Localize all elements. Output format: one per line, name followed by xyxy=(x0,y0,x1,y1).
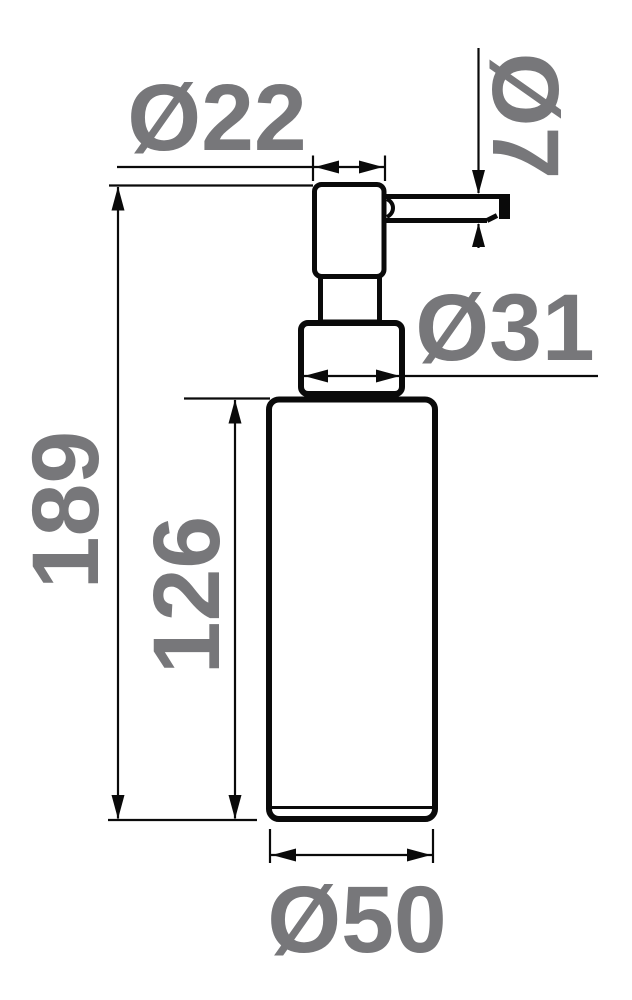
label-body-diameter: Ø50 xyxy=(267,867,447,973)
label-spout-diameter: Ø7 xyxy=(472,53,578,180)
label-body-height: 126 xyxy=(134,516,240,675)
pump-head-outline xyxy=(315,185,385,277)
arrow-body-dia-right xyxy=(407,849,431,862)
technical-drawing-canvas: Ø22 Ø7 Ø31 189 126 Ø50 xyxy=(0,0,632,1000)
spout-base-fillet xyxy=(387,199,393,217)
collar-outline xyxy=(301,323,402,394)
label-pump-head-diameter: Ø22 xyxy=(127,65,307,171)
arrow-body-height-down xyxy=(229,795,242,819)
arrow-pump-head-left xyxy=(315,161,339,174)
spout-tip-step xyxy=(487,216,497,221)
bottle-body-outline xyxy=(269,400,435,820)
label-collar-diameter: Ø31 xyxy=(415,275,595,381)
arrow-spout-up xyxy=(472,223,485,247)
dispenser-dimension-drawing: Ø22 Ø7 Ø31 189 126 Ø50 xyxy=(0,0,632,1000)
arrow-total-height-up xyxy=(112,187,125,211)
spout-tip-cap xyxy=(499,194,510,219)
label-total-height: 189 xyxy=(13,431,119,590)
arrow-total-height-down xyxy=(112,795,125,819)
arrow-pump-head-right xyxy=(359,161,383,174)
arrow-body-dia-left xyxy=(272,849,296,862)
arrow-body-height-up xyxy=(229,400,242,424)
